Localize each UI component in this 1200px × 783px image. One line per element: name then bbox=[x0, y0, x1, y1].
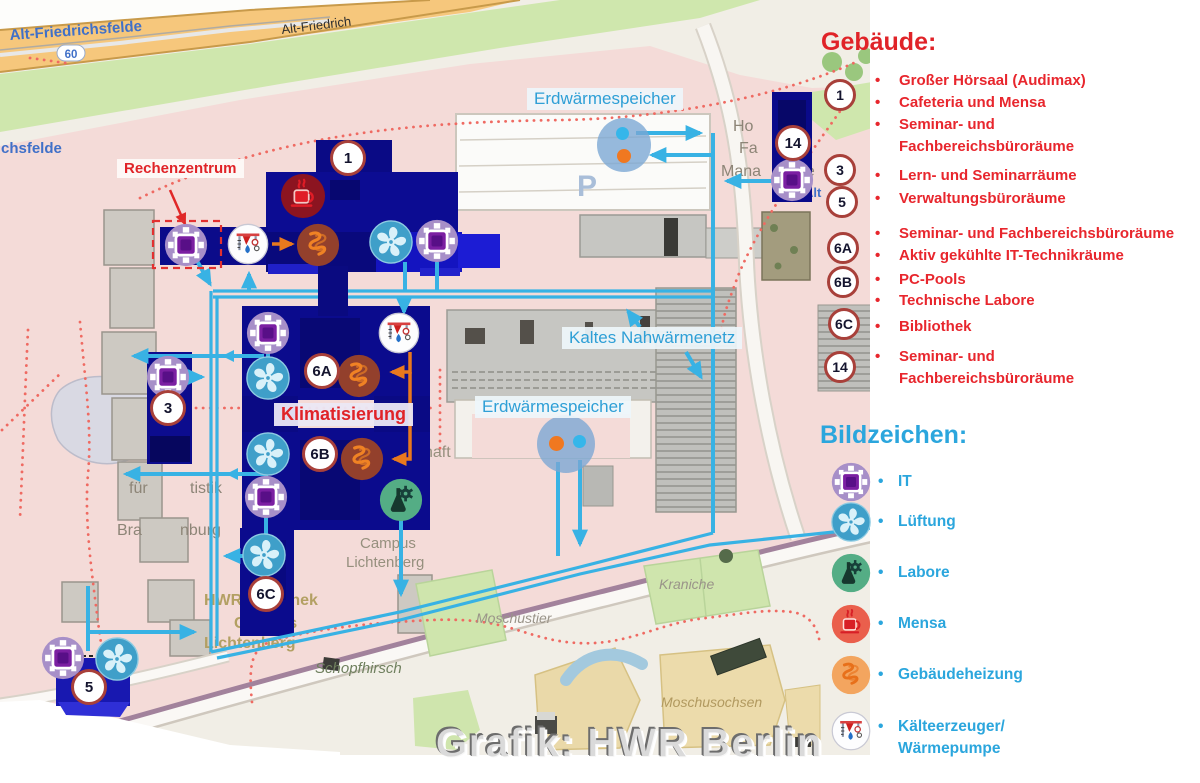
it-icon bbox=[246, 311, 290, 355]
building-item: Großer Hörsaal (Audimax) bbox=[875, 71, 1086, 91]
svg-text:Kraniche: Kraniche bbox=[659, 576, 714, 592]
warm-dot bbox=[549, 436, 564, 451]
warm-dot bbox=[617, 149, 631, 163]
ventilation-icon bbox=[831, 502, 871, 542]
svg-text:chsfelde: chsfelde bbox=[1, 140, 62, 157]
watermark: Grafik: HWR Berlin bbox=[436, 720, 823, 767]
it-icon bbox=[164, 223, 208, 267]
building-item: Fachbereichsbüroräume bbox=[875, 137, 1074, 157]
ventilation-icon bbox=[246, 432, 290, 476]
ventilation-icon bbox=[369, 220, 413, 264]
building-badge-6c: 6C bbox=[248, 576, 284, 612]
legend-badge-6a: 6A bbox=[827, 232, 859, 264]
label-rechenzentrum: Rechenzentrum bbox=[117, 159, 244, 178]
building-connector bbox=[318, 266, 348, 316]
svg-text:Fa: Fa bbox=[739, 140, 758, 157]
legend-badge-6b: 6B bbox=[827, 266, 859, 298]
building-item: Fachbereichsbüroräume bbox=[875, 369, 1074, 389]
building-heating-icon bbox=[296, 223, 340, 267]
symbol-item-lueftung: Lüftung bbox=[878, 511, 956, 533]
cooler-heatpump-icon bbox=[378, 312, 420, 354]
building-item: Aktiv gekühlte IT-Technikräume bbox=[875, 246, 1124, 266]
it-icon bbox=[770, 158, 814, 202]
cold-dot bbox=[616, 127, 629, 140]
it-icon bbox=[831, 462, 871, 502]
building-heating-icon bbox=[340, 437, 384, 481]
symbol-item-it: IT bbox=[878, 471, 912, 493]
svg-text:Ho: Ho bbox=[733, 118, 754, 135]
it-icon bbox=[415, 219, 459, 263]
symbol-item-mensa: Mensa bbox=[878, 613, 946, 635]
svg-text:P: P bbox=[577, 170, 597, 203]
svg-text:nburg: nburg bbox=[180, 522, 221, 539]
building-heating-icon bbox=[831, 655, 871, 695]
mensa-icon bbox=[831, 604, 871, 644]
svg-text:Lichtenberg: Lichtenberg bbox=[346, 554, 424, 571]
svg-text:für: für bbox=[129, 480, 148, 497]
building-item: PC-Pools bbox=[875, 270, 966, 290]
geothermal-storage-top bbox=[597, 118, 651, 172]
svg-text:Campus: Campus bbox=[360, 535, 416, 552]
building-badge-1: 1 bbox=[330, 140, 366, 176]
symbol-item-kaelteerzeuger: Kälteerzeuger/Wärmepumpe bbox=[878, 716, 1005, 760]
svg-text:Mana: Mana bbox=[721, 163, 761, 180]
legend-badge-6c: 6C bbox=[828, 308, 860, 340]
legend-badge-3: 3 bbox=[824, 154, 856, 186]
geothermal-storage-bottom bbox=[537, 415, 595, 473]
svg-text:Moschusochsen: Moschusochsen bbox=[661, 694, 762, 710]
label-erdwaermespeicher-bottom: Erdwärmespeicher bbox=[475, 396, 631, 418]
svg-text:Schopfhirsch: Schopfhirsch bbox=[315, 660, 402, 677]
ventilation-icon bbox=[246, 356, 290, 400]
cold-dot bbox=[573, 435, 586, 448]
ventilation-icon bbox=[242, 533, 286, 577]
svg-text:Bra: Bra bbox=[117, 522, 142, 539]
symbol-item-gebaeudeheizung: Gebäudeheizung bbox=[878, 664, 1023, 686]
cooler-heatpump-icon bbox=[227, 223, 269, 265]
building-badge-3: 3 bbox=[150, 390, 186, 426]
building-heating-icon bbox=[337, 354, 381, 398]
svg-text:Moschustier: Moschustier bbox=[476, 610, 553, 626]
building-badge-5: 5 bbox=[71, 669, 107, 705]
svg-text:60: 60 bbox=[65, 49, 78, 61]
building-item: Seminar- und Fachbereichsbüroräume bbox=[875, 224, 1174, 244]
symbol-item-labore: Labore bbox=[878, 562, 950, 584]
building-badge-6a: 6A bbox=[304, 353, 340, 389]
building-item: Seminar- und bbox=[875, 347, 995, 367]
label-klimatisierung: Klimatisierung bbox=[274, 403, 413, 426]
labs-icon bbox=[379, 478, 423, 522]
building-item: Cafeteria und Mensa bbox=[875, 93, 1046, 113]
it-icon bbox=[244, 475, 288, 519]
legend-badge-14: 14 bbox=[824, 351, 856, 383]
building-item: Lern- und Seminarräume bbox=[875, 166, 1077, 186]
label-kaltes-nahwaermenetz: Kaltes Nahwärmenetz bbox=[562, 327, 742, 349]
labs-icon bbox=[831, 553, 871, 593]
symbols-heading: Bildzeichen: bbox=[820, 421, 967, 450]
building-badge-6b: 6B bbox=[302, 436, 338, 472]
mensa-icon bbox=[280, 173, 326, 219]
cooler-heatpump-icon bbox=[831, 711, 871, 751]
campus-energy-map: Alt-Friedrichsfelde 60 Alt-Friedrich chs… bbox=[0, 0, 1200, 783]
building-item: Technische Labore bbox=[875, 291, 1035, 311]
buildings-heading: Gebäude: bbox=[821, 28, 936, 57]
building-item: Verwaltungsbüroräume bbox=[875, 189, 1066, 209]
legend-badge-5: 5 bbox=[826, 186, 858, 218]
building-badge-14: 14 bbox=[775, 125, 811, 161]
building-item: Bibliothek bbox=[875, 317, 972, 337]
label-erdwaermespeicher-top: Erdwärmespeicher bbox=[527, 88, 683, 110]
building-item: Seminar- und bbox=[875, 115, 995, 135]
legend-badge-1: 1 bbox=[824, 79, 856, 111]
